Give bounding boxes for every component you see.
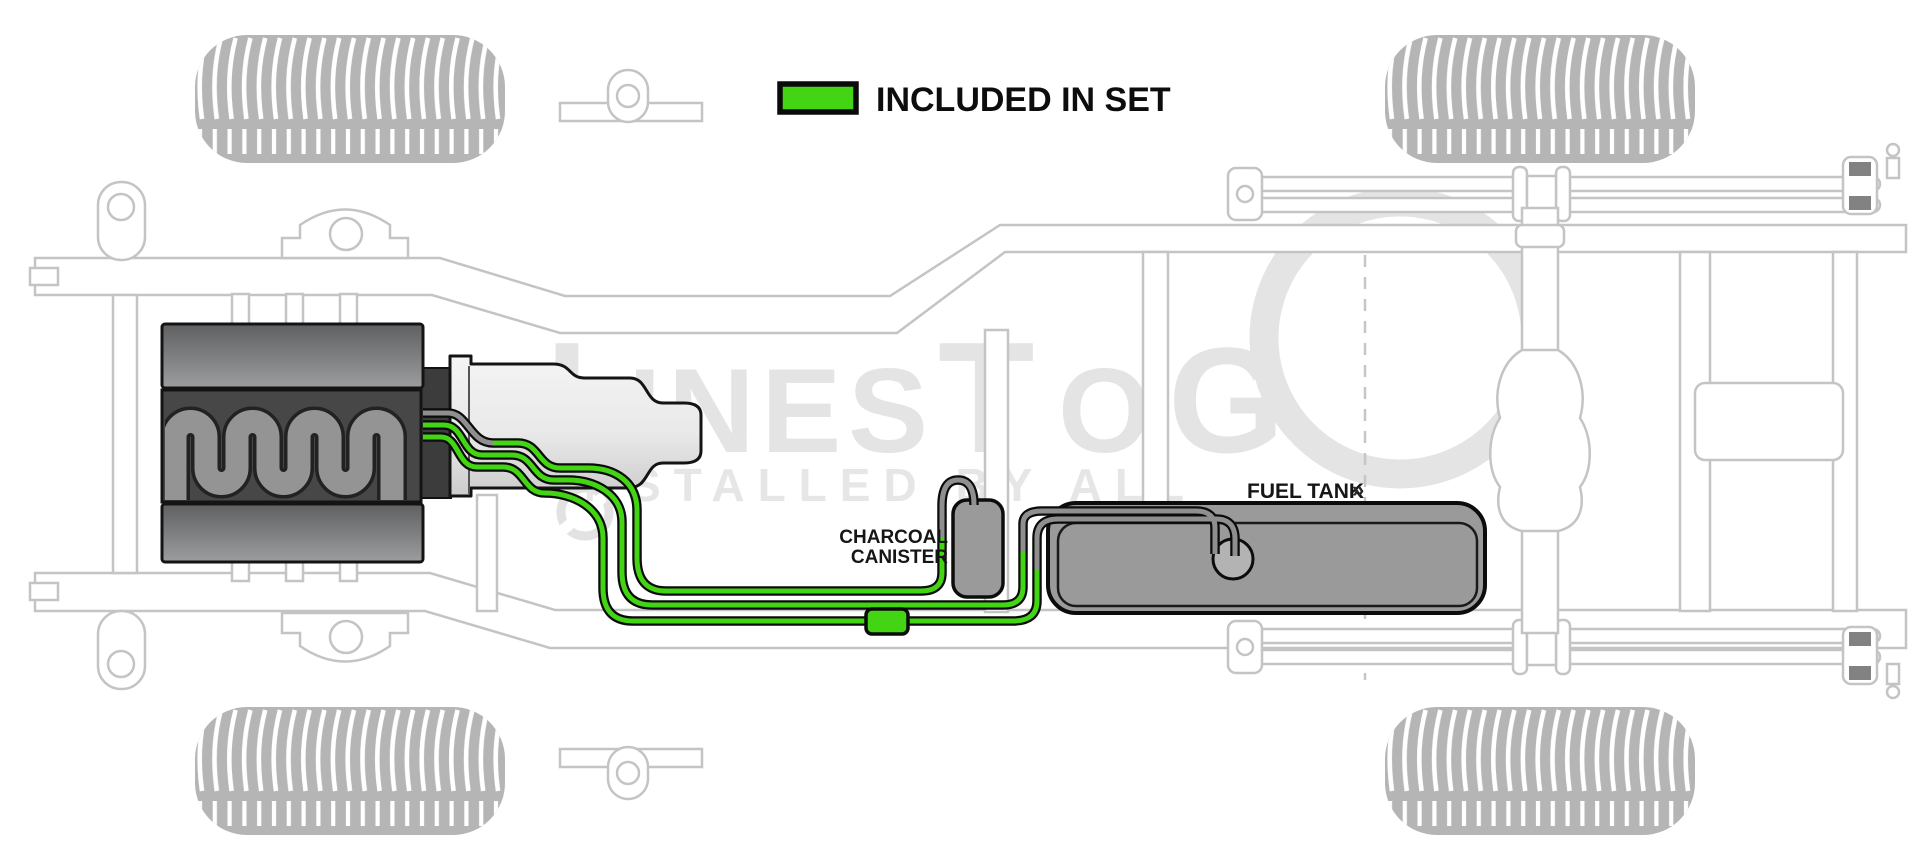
fuel-tank-label: FUEL TANK <box>1247 480 1364 503</box>
valve-cover-right <box>162 504 423 562</box>
outrigger-top <box>560 70 702 122</box>
tire-front-left <box>195 35 505 163</box>
body-mount-bracket-front-top <box>98 182 145 260</box>
cab-mount-hole-top <box>330 218 362 250</box>
watermark-letter-o: O <box>1058 344 1151 478</box>
frame-horn-notch-top <box>30 268 58 285</box>
diagram-canvas: L INES T O G INSTALLED BY ALL <box>0 0 1930 841</box>
fuel-line-diagram: L INES T O G INSTALLED BY ALL <box>0 0 1930 841</box>
fuel-line-connector <box>866 609 908 634</box>
frame-horn-notch-bottom <box>30 583 58 600</box>
legend-label: INCLUDED IN SET <box>876 81 1171 119</box>
tire-rear-right <box>1385 707 1695 835</box>
leaf-spring-bottom <box>1228 620 1899 698</box>
outrigger-bottom <box>560 747 702 799</box>
legend-swatch <box>780 84 856 112</box>
shackle-bushing <box>1849 196 1871 210</box>
charcoal-canister-label-line1: CHARCOAL <box>839 527 948 548</box>
crossmember-front <box>113 295 137 573</box>
legend: INCLUDED IN SET <box>780 81 1171 119</box>
fuel-tank-marker: » <box>1352 477 1364 502</box>
rear-box-mount <box>1695 383 1843 460</box>
differential-housing <box>1490 350 1590 531</box>
engine <box>162 324 451 562</box>
shackle-bushing <box>1849 162 1871 176</box>
tire-front-right <box>195 707 505 835</box>
charcoal-canister <box>953 500 1003 597</box>
valve-cover-left <box>162 324 423 388</box>
shackle-bushing <box>1849 632 1871 646</box>
body-mount-bracket-front-bottom <box>98 611 145 689</box>
crossmember-trans <box>477 495 497 611</box>
shackle-bushing <box>1849 666 1871 680</box>
cab-mount-hole-bottom <box>330 621 362 653</box>
charcoal-canister-label-line2: CANISTER <box>851 547 948 568</box>
tire-rear-left <box>1385 35 1695 163</box>
